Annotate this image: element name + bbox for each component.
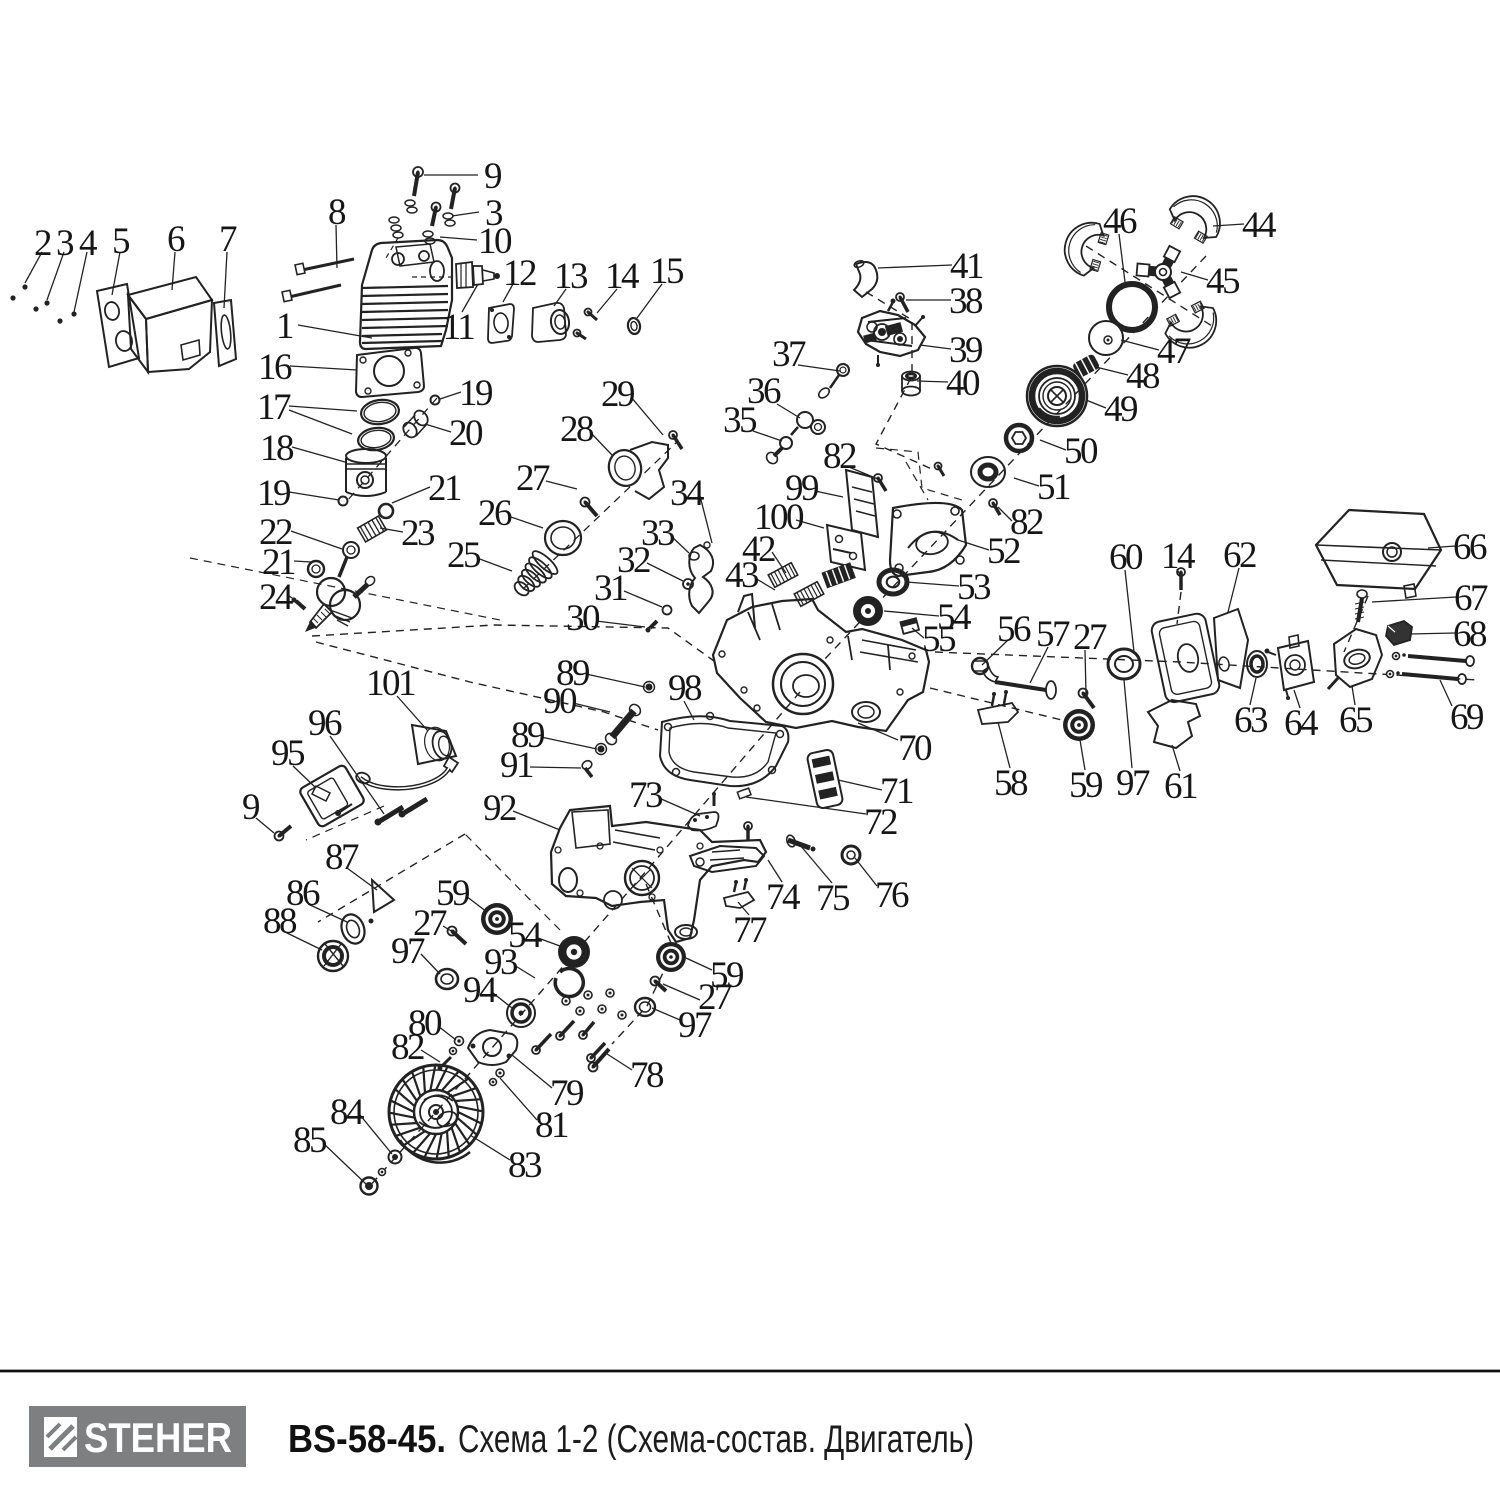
svg-text:20: 20 bbox=[449, 413, 483, 454]
svg-text:85: 85 bbox=[293, 1120, 327, 1161]
svg-text:14: 14 bbox=[605, 256, 639, 297]
svg-text:64: 64 bbox=[1284, 703, 1318, 744]
svg-text:68: 68 bbox=[1453, 614, 1487, 655]
svg-text:24: 24 bbox=[259, 577, 293, 618]
svg-text:47: 47 bbox=[1157, 331, 1191, 372]
svg-text:45: 45 bbox=[1206, 261, 1240, 302]
svg-text:44: 44 bbox=[1242, 205, 1276, 246]
svg-text:17: 17 bbox=[257, 387, 291, 428]
svg-text:94: 94 bbox=[463, 970, 497, 1011]
svg-text:27: 27 bbox=[516, 458, 550, 499]
svg-text:3: 3 bbox=[56, 223, 74, 264]
svg-text:73: 73 bbox=[629, 775, 663, 816]
svg-text:87: 87 bbox=[325, 837, 359, 878]
svg-text:19: 19 bbox=[459, 373, 492, 414]
svg-text:62: 62 bbox=[1223, 535, 1256, 576]
svg-text:84: 84 bbox=[330, 1092, 364, 1133]
svg-text:27: 27 bbox=[1073, 617, 1107, 658]
svg-text:12: 12 bbox=[503, 253, 536, 294]
svg-text:7: 7 bbox=[219, 219, 237, 260]
svg-text:97: 97 bbox=[678, 1005, 712, 1046]
svg-text:67: 67 bbox=[1454, 578, 1488, 619]
svg-text:82: 82 bbox=[823, 436, 856, 477]
svg-text:77: 77 bbox=[733, 910, 767, 951]
svg-text:Схема 1-2 (Схема-состав. Двига: Схема 1-2 (Схема-состав. Двигатель) bbox=[458, 1418, 974, 1461]
svg-text:BS-58-45.: BS-58-45. bbox=[288, 1418, 446, 1461]
svg-text:82: 82 bbox=[391, 1027, 424, 1068]
svg-text:66: 66 bbox=[1453, 527, 1487, 568]
svg-text:98: 98 bbox=[668, 668, 702, 709]
svg-text:83: 83 bbox=[508, 1145, 542, 1186]
svg-text:2: 2 bbox=[34, 223, 51, 264]
svg-text:78: 78 bbox=[630, 1055, 664, 1096]
svg-text:9: 9 bbox=[242, 787, 259, 828]
svg-text:43: 43 bbox=[725, 555, 759, 596]
svg-text:STEHER: STEHER bbox=[84, 1414, 232, 1461]
svg-text:59: 59 bbox=[1069, 765, 1102, 806]
svg-text:56: 56 bbox=[997, 609, 1031, 650]
svg-text:30: 30 bbox=[566, 598, 600, 639]
svg-text:14: 14 bbox=[1161, 536, 1195, 577]
svg-text:19: 19 bbox=[257, 473, 290, 514]
svg-text:18: 18 bbox=[260, 428, 294, 469]
svg-text:21: 21 bbox=[428, 468, 461, 509]
svg-text:70: 70 bbox=[898, 728, 932, 769]
svg-text:81: 81 bbox=[535, 1105, 568, 1146]
svg-text:88: 88 bbox=[263, 901, 297, 942]
svg-text:40: 40 bbox=[946, 363, 980, 404]
svg-text:69: 69 bbox=[1450, 697, 1483, 738]
svg-text:9: 9 bbox=[484, 156, 501, 197]
svg-text:46: 46 bbox=[1103, 201, 1137, 242]
svg-text:4: 4 bbox=[79, 223, 97, 264]
svg-text:74: 74 bbox=[766, 877, 800, 918]
svg-text:23: 23 bbox=[401, 513, 435, 554]
svg-text:1: 1 bbox=[276, 306, 293, 347]
svg-text:38: 38 bbox=[949, 281, 983, 322]
svg-text:97: 97 bbox=[1116, 763, 1150, 804]
svg-text:92: 92 bbox=[483, 788, 516, 829]
svg-text:35: 35 bbox=[723, 400, 757, 441]
svg-text:90: 90 bbox=[543, 681, 577, 722]
svg-text:5: 5 bbox=[112, 221, 130, 262]
svg-text:72: 72 bbox=[864, 802, 897, 843]
svg-text:25: 25 bbox=[447, 535, 481, 576]
svg-text:13: 13 bbox=[554, 256, 588, 297]
svg-text:26: 26 bbox=[478, 493, 512, 534]
svg-text:101: 101 bbox=[366, 663, 415, 704]
svg-text:91: 91 bbox=[500, 745, 533, 786]
svg-text:15: 15 bbox=[650, 251, 684, 292]
svg-text:29: 29 bbox=[601, 374, 634, 415]
svg-text:61: 61 bbox=[1164, 766, 1197, 807]
svg-text:50: 50 bbox=[1064, 431, 1098, 472]
svg-text:55: 55 bbox=[922, 619, 956, 660]
svg-text:34: 34 bbox=[670, 473, 704, 514]
svg-text:65: 65 bbox=[1339, 700, 1373, 741]
svg-text:58: 58 bbox=[994, 763, 1028, 804]
svg-text:96: 96 bbox=[308, 703, 342, 744]
svg-text:28: 28 bbox=[560, 409, 594, 450]
svg-text:6: 6 bbox=[167, 219, 185, 260]
svg-text:97: 97 bbox=[391, 931, 425, 972]
svg-text:49: 49 bbox=[1104, 389, 1137, 430]
svg-text:37: 37 bbox=[772, 334, 806, 375]
svg-text:31: 31 bbox=[594, 568, 627, 609]
svg-text:63: 63 bbox=[1234, 700, 1268, 741]
svg-text:95: 95 bbox=[271, 733, 305, 774]
svg-text:57: 57 bbox=[1036, 614, 1070, 655]
svg-text:76: 76 bbox=[875, 875, 909, 916]
svg-text:75: 75 bbox=[816, 878, 850, 919]
svg-text:8: 8 bbox=[328, 192, 346, 233]
svg-text:11: 11 bbox=[443, 307, 475, 348]
svg-text:82: 82 bbox=[1010, 502, 1043, 543]
svg-text:16: 16 bbox=[258, 347, 292, 388]
svg-text:60: 60 bbox=[1109, 537, 1143, 578]
